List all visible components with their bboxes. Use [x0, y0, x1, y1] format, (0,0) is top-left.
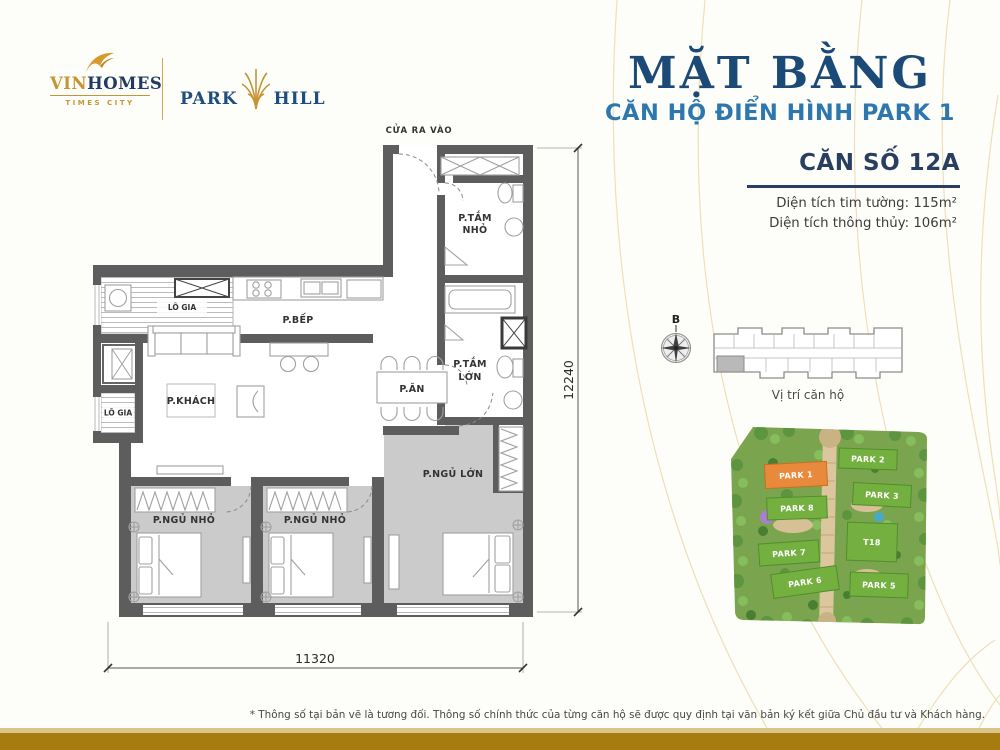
compass-icon: B — [650, 312, 704, 372]
technical-shaft — [502, 318, 526, 348]
vinhomes-times-city: TIMES CITY — [50, 95, 150, 107]
unit-areas: Diện tích tim tường: 115m² Diện tích thô… — [545, 194, 957, 234]
floor-plan: LÔ GIA LÔ GIA — [85, 121, 595, 695]
vinhomes-wordmark: VINHOMES — [50, 74, 150, 93]
dim-width-label: 11320 — [295, 651, 335, 666]
room-label-bedroom-1: P.NGỦ NHỎ — [153, 513, 215, 526]
room-label-bath-large-1: P.TẮM — [453, 357, 487, 370]
svg-text:PARK 5: PARK 5 — [862, 580, 896, 590]
parkhill-park: PARK — [180, 91, 238, 112]
svg-text:PARK 2: PARK 2 — [851, 454, 885, 464]
building-park2: PARK 2 — [839, 448, 898, 470]
building-park5: PARK 5 — [850, 572, 909, 598]
unit-number-underline — [747, 185, 960, 188]
room-label-loggia-left: LÔ GIA — [104, 409, 132, 418]
area-net: Diện tích thông thủy: 106m² — [545, 214, 957, 234]
armchair — [237, 386, 264, 417]
sofa — [153, 326, 235, 333]
svg-text:T18: T18 — [863, 538, 881, 548]
wardrobe — [499, 427, 523, 491]
room-label-bedroom-master: P.NGỦ LỚN — [423, 467, 484, 480]
building-park1: PARK 1 — [764, 461, 827, 488]
logo-divider-line — [162, 58, 163, 120]
vinhomes-logo: VINHOMES TIMES CITY — [50, 48, 150, 107]
building-floorplate-diagram — [710, 318, 908, 384]
entrance-label: CỬA RA VÀO — [386, 123, 453, 136]
vinhomes-homes: HOMES — [87, 74, 162, 93]
bottom-bar-gold — [0, 733, 1000, 750]
room-label-bath-large-2: LỚN — [458, 371, 481, 383]
palm-tree-icon — [241, 66, 271, 112]
room-label-bath-small-2: NHỎ — [463, 223, 488, 236]
room-label-kitchen: P.BẾP — [282, 313, 313, 326]
kitchen-island — [270, 343, 328, 356]
building-park3: PARK 3 — [852, 482, 911, 507]
svg-text:PARK 8: PARK 8 — [780, 503, 814, 513]
page-subtitle: CĂN HỘ ĐIỂN HÌNH PARK 1 — [545, 100, 1000, 126]
side-table — [364, 537, 371, 583]
area-gross: Diện tích tim tường: 115m² — [545, 194, 957, 214]
highlighted-unit — [717, 356, 744, 372]
svg-text:PARK 3: PARK 3 — [865, 490, 899, 501]
title-block: MẶT BẰNG CĂN HỘ ĐIỂN HÌNH PARK 1 — [545, 50, 1000, 126]
dimension-width: 11320 — [104, 622, 527, 673]
room-label-living: P.KHÁCH — [167, 395, 216, 407]
room-label-bath-small-1: P.TẮM — [458, 211, 492, 224]
room-label-loggia-top: LÔ GIA — [168, 303, 196, 312]
building-park7: PARK 7 — [758, 540, 819, 566]
building-t18: T18 — [846, 522, 897, 562]
unit-number: CĂN SỐ 12A — [545, 150, 960, 176]
washing-machine — [105, 285, 131, 311]
dresser — [389, 535, 399, 589]
entry-closet — [441, 157, 519, 175]
side-table — [243, 537, 250, 583]
vinhomes-bird-icon — [78, 48, 122, 74]
dimension-height: 12240 — [537, 144, 582, 616]
svg-text:PARK 1: PARK 1 — [779, 470, 813, 481]
building-park8: PARK 8 — [767, 496, 828, 520]
footnote: * Thông số tại bản vẽ là tương đối. Thôn… — [250, 709, 985, 721]
compass-north-label: B — [672, 313, 680, 326]
tv-cabinet — [157, 466, 223, 474]
loggia-left: LÔ GIA — [101, 393, 135, 433]
site-map: PARK 1 PARK 2 PARK 8 PARK 3 T18 — [727, 425, 938, 635]
room-label-bedroom-2: P.NGỦ NHỎ — [284, 513, 346, 526]
location-caption: Vị trí căn hộ — [708, 388, 908, 402]
dim-height-label: 12240 — [561, 360, 576, 400]
brochure-page: VINHOMES TIMES CITY PARK HILL MẶT BẰNG C… — [0, 0, 1000, 750]
room-label-dining: P.ĂN — [399, 383, 424, 395]
parkhill-hill: HILL — [274, 91, 326, 112]
parkhill-logo: PARK HILL — [180, 66, 326, 112]
vinhomes-vin: VIN — [50, 74, 87, 93]
page-title: MẶT BẰNG — [545, 50, 1000, 98]
